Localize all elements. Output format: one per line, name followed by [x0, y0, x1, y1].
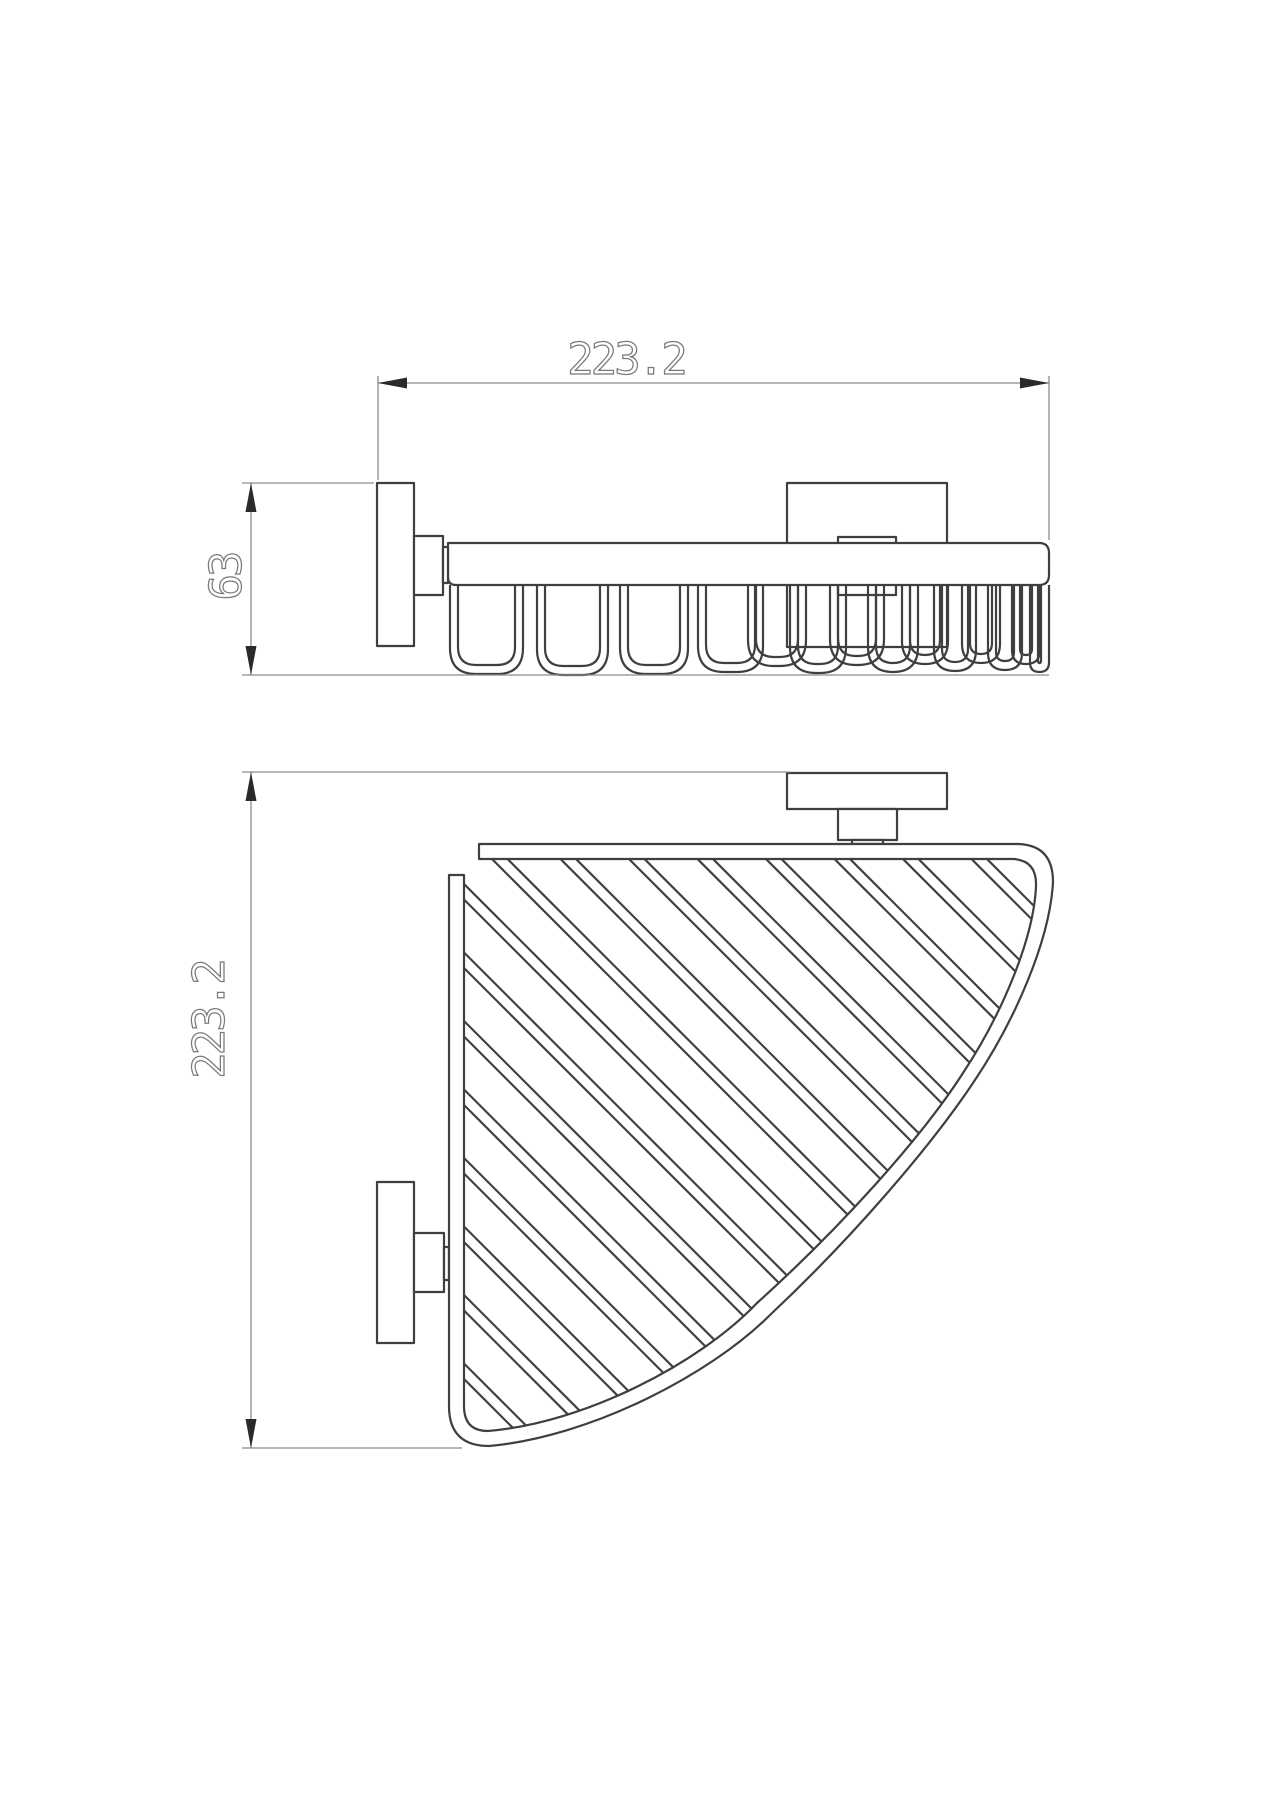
wire-loop-inner — [458, 585, 515, 665]
wire-loop-outer — [537, 585, 608, 675]
dimension-label-depth: 223.2 — [184, 961, 235, 1078]
wire-hatch-line — [315, 819, 1015, 1519]
top-wall-plate-plan — [787, 773, 947, 809]
dimension-label-height: 63 — [201, 553, 252, 600]
wire-hatch-line — [331, 819, 1031, 1519]
wire-hatch-line — [589, 819, 1273, 1519]
wire-loop-outer — [450, 585, 523, 674]
wire-hatch-line — [41, 819, 741, 1519]
plan-view: 223.2 — [0, 772, 1273, 1519]
wire-hatch-line — [178, 819, 878, 1519]
wire-hatch — [0, 819, 1273, 1519]
wire-loop-inner — [628, 585, 680, 665]
wire-hatch-line — [947, 819, 1273, 1519]
wire-hatch-line — [879, 819, 1273, 1519]
dimension-label-width: 223.2 — [567, 334, 684, 385]
left-boss-step-front — [443, 547, 448, 583]
dimension-width: 223.2 — [378, 334, 1049, 540]
arrowhead-right-icon — [1020, 378, 1049, 389]
arrowhead-left-icon — [378, 378, 407, 389]
wire-hatch-line — [194, 819, 894, 1519]
drawing-sheet: 223.2 63 — [0, 0, 1273, 1800]
wire-hatch-line — [521, 819, 1221, 1519]
wire-loop-inner — [545, 585, 600, 666]
top-wall-boss-plan — [838, 809, 897, 840]
arrowhead-down-icon — [246, 1419, 257, 1448]
wire-hatch-line — [863, 819, 1273, 1519]
front-elevation-view: 223.2 63 — [201, 334, 1049, 675]
wire-hatch-line — [399, 819, 1099, 1519]
left-wall-boss-front — [414, 536, 443, 595]
wire-hatch-line — [57, 819, 757, 1519]
basket-rim-front — [448, 543, 1049, 585]
arrowhead-up-icon — [246, 483, 257, 512]
left-wall-boss-plan — [414, 1233, 444, 1292]
dimension-depth: 223.2 — [184, 772, 790, 1448]
left-wall-plate-plan — [377, 1182, 414, 1343]
wire-hatch-line — [605, 819, 1273, 1519]
arrowhead-up-icon — [246, 772, 257, 801]
wire-hatch-line — [742, 819, 1273, 1519]
basket-rim-plan — [449, 844, 1053, 1446]
technical-drawing: 223.2 63 — [0, 0, 1273, 1800]
wire-hatch-line — [125, 819, 825, 1519]
wire-hatch-line — [726, 819, 1273, 1519]
wire-hatch-line — [536, 819, 1236, 1519]
arrowhead-down-icon — [246, 646, 257, 675]
left-wall-plate-front — [377, 483, 414, 646]
wire-hatch-line — [384, 819, 1084, 1519]
wire-loop-outer — [620, 585, 688, 674]
wire-loop-outer — [1012, 585, 1040, 664]
wire-loops — [450, 585, 1049, 675]
